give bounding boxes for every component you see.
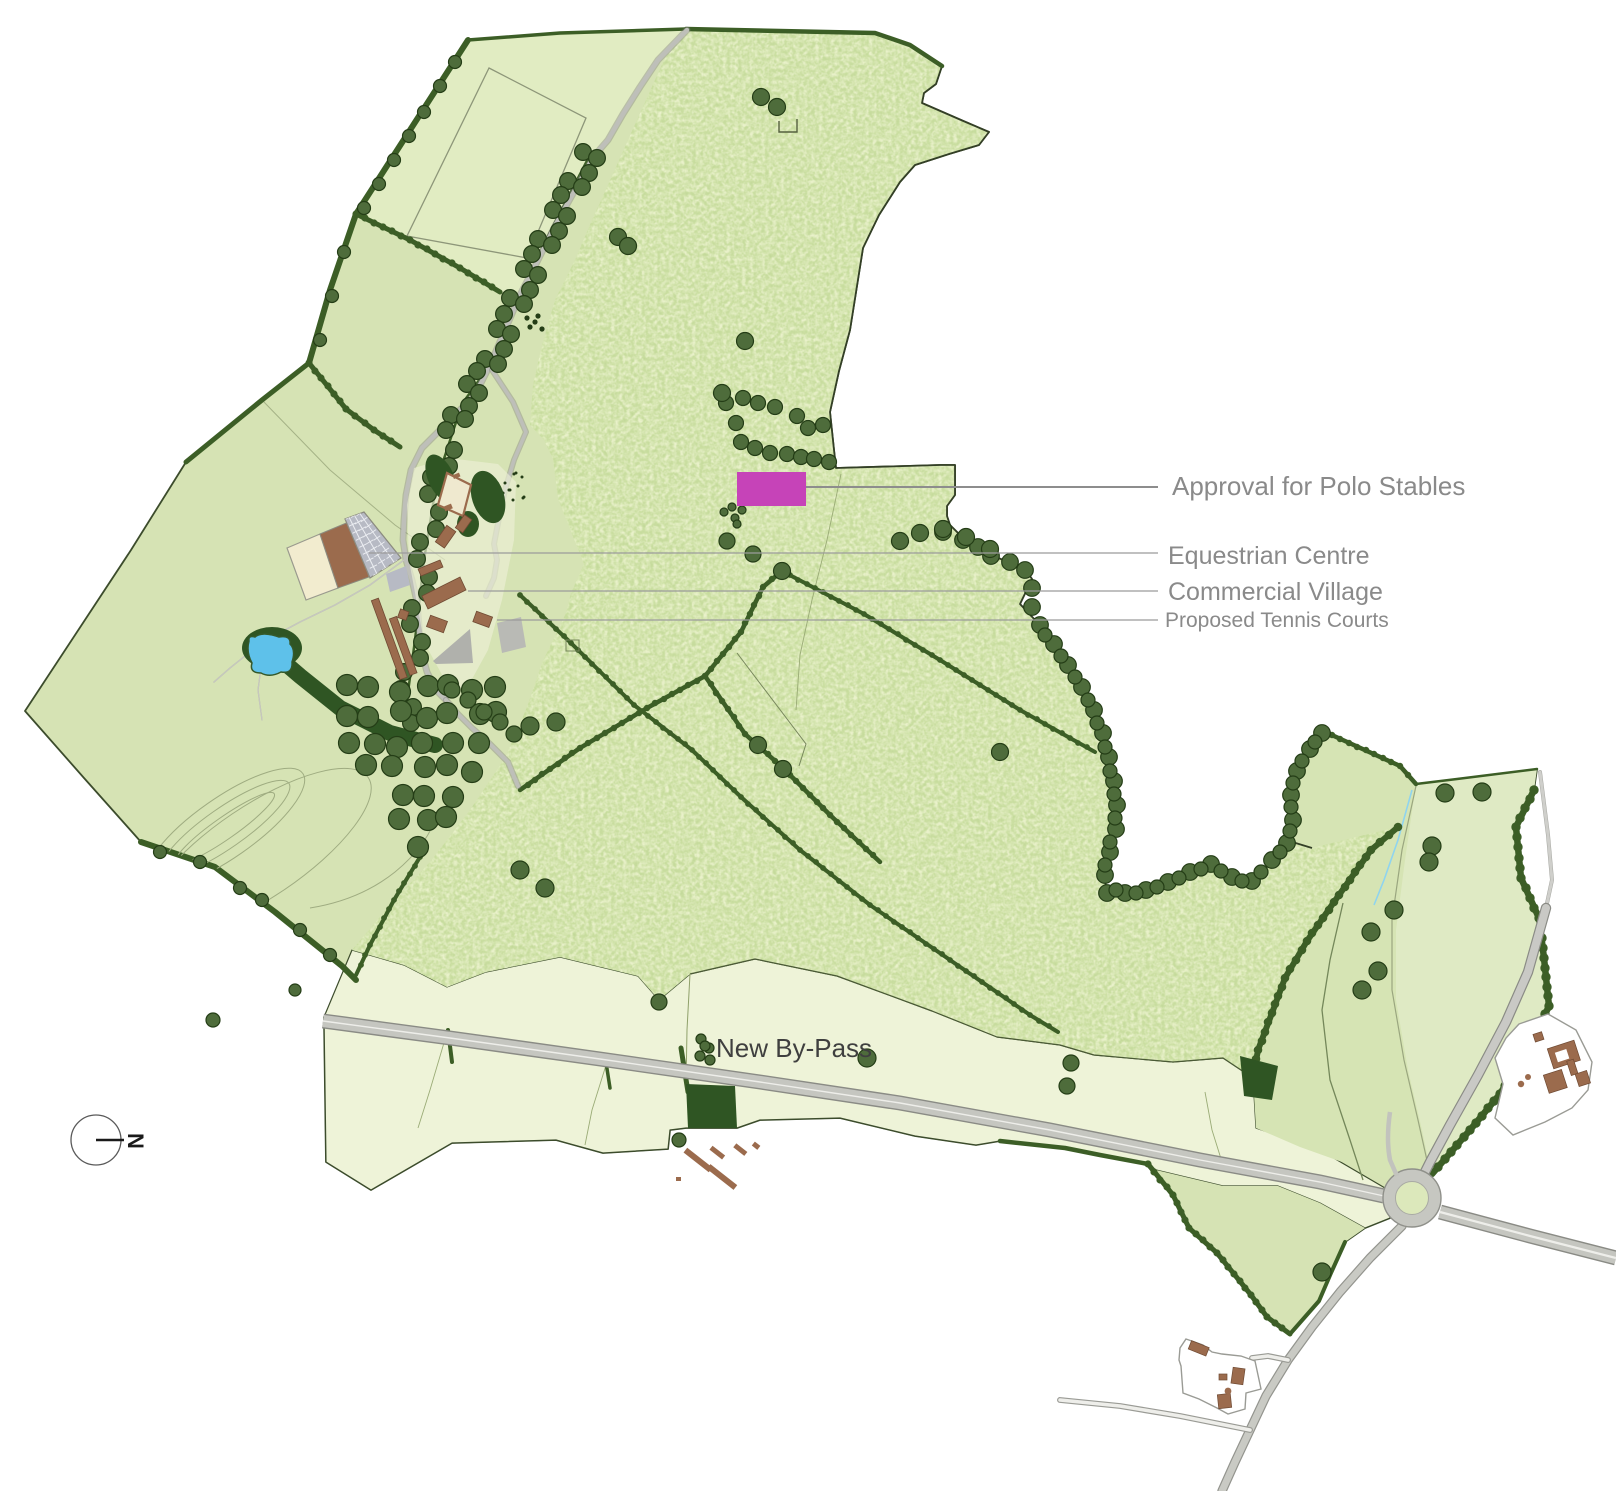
svg-text:Approval for Polo Stables: Approval for Polo Stables	[1172, 471, 1465, 501]
svg-text:Equestrian Centre: Equestrian Centre	[1168, 542, 1370, 570]
svg-text:New By-Pass: New By-Pass	[716, 1033, 872, 1063]
svg-text:N: N	[123, 1133, 148, 1149]
svg-text:Commercial Village: Commercial Village	[1168, 578, 1383, 606]
svg-text:Proposed Tennis Courts: Proposed Tennis Courts	[1165, 609, 1389, 632]
